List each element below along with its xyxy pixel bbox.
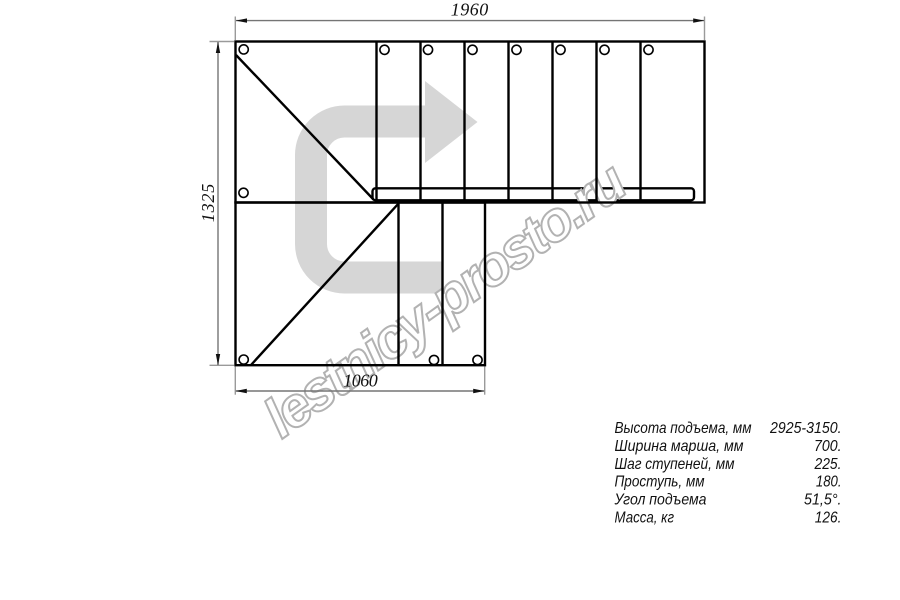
svg-text:1960: 1960 xyxy=(451,0,489,20)
svg-text:1060: 1060 xyxy=(343,371,378,391)
svg-text:700.: 700. xyxy=(814,438,842,455)
svg-text:Высота подъема, мм: Высота подъема, мм xyxy=(615,420,752,437)
svg-text:Масса, кг: Масса, кг xyxy=(615,510,675,527)
svg-text:126.: 126. xyxy=(815,510,842,527)
svg-text:225.: 225. xyxy=(814,456,842,473)
svg-text:Проступь, мм: Проступь, мм xyxy=(615,474,705,491)
svg-text:Угол подъема: Угол подъема xyxy=(614,492,707,509)
svg-text:Шаг ступеней, мм: Шаг ступеней, мм xyxy=(615,456,735,473)
svg-text:Ширина марша, мм: Ширина марша, мм xyxy=(615,438,744,455)
svg-text:180.: 180. xyxy=(816,474,842,491)
svg-text:51,5°.: 51,5°. xyxy=(804,492,842,509)
svg-text:1325: 1325 xyxy=(198,184,218,223)
svg-text:2925-3150.: 2925-3150. xyxy=(769,420,841,437)
